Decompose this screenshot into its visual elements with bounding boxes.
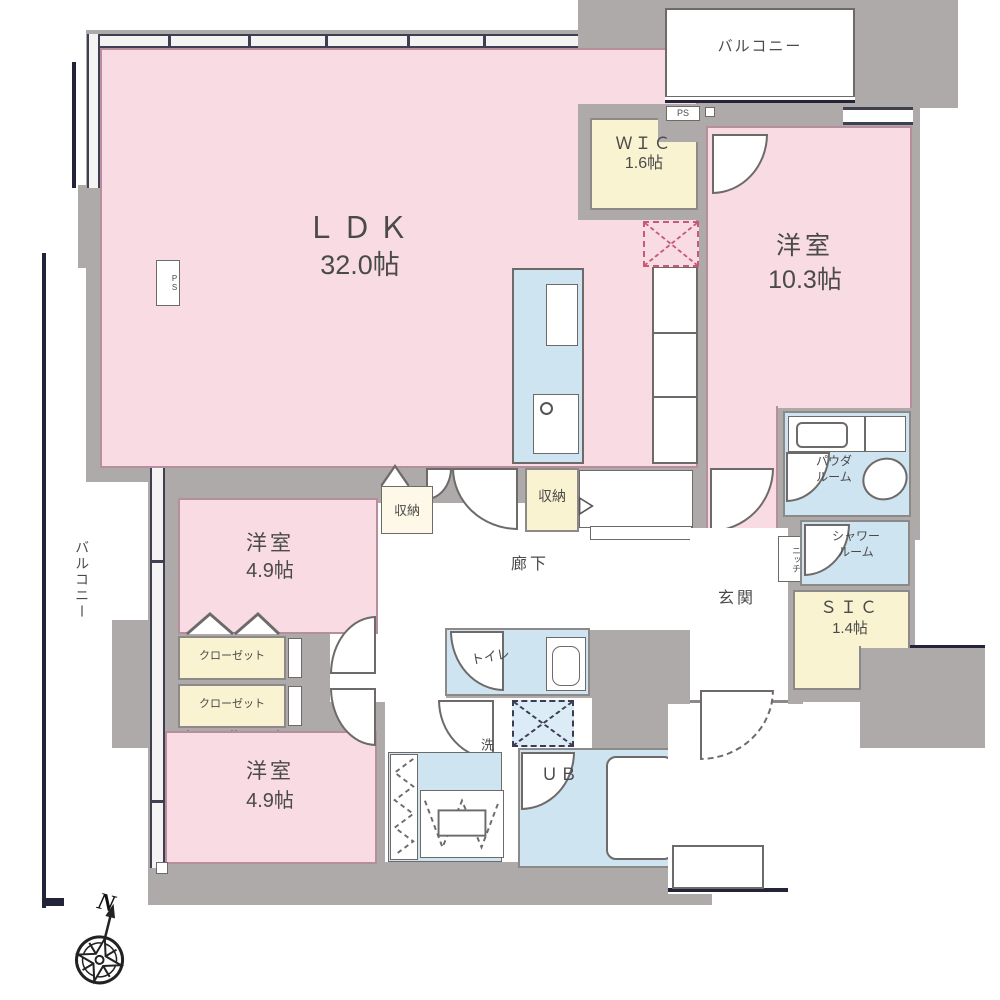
refrigerator-space-icon — [643, 221, 699, 267]
bedroom2-name-label: 洋室 — [215, 532, 325, 556]
folding-door-icon — [185, 612, 281, 636]
sic-name-label: ＳＩＣ — [800, 598, 900, 618]
window-mullion — [407, 34, 410, 48]
kitchen-sink — [533, 394, 579, 454]
balcony-top-sill — [665, 97, 855, 103]
bathtub-icon — [606, 756, 674, 860]
storage-hall-left: 収納 — [381, 486, 433, 534]
wall-left-pillar — [112, 620, 182, 748]
hall-closet — [579, 470, 693, 528]
powder-label2: ルーム — [790, 471, 878, 485]
shower-label1: シャワー — [806, 530, 906, 544]
bedroom3-size-label: 4.9帖 — [215, 790, 325, 813]
entrance-floor — [690, 528, 788, 704]
storage-hall-right-label: 収納 — [525, 488, 579, 504]
room-sic-lower — [793, 646, 861, 690]
niche-label: ニッチ — [778, 536, 802, 582]
window-mullion — [168, 34, 171, 48]
window-mullion — [150, 800, 165, 803]
slide-door-arrow-icon — [578, 496, 594, 516]
cooktop — [546, 284, 578, 346]
balcony-edge-left — [42, 253, 46, 908]
closet-door-slot — [288, 686, 302, 726]
window-mullion — [150, 560, 165, 563]
balcony-end-detail — [156, 862, 168, 874]
entrance-label: 玄関 — [702, 590, 772, 608]
bedroom1-size-label: 10.3帖 — [740, 266, 870, 295]
bedroom1-name-label: 洋室 — [745, 232, 865, 261]
balcony-left-label: バルコニー — [74, 515, 90, 645]
balcony-top-label: バルコニー — [665, 38, 855, 55]
wic-size-label: 1.6帖 — [590, 155, 698, 173]
bedroom1-window — [843, 107, 913, 125]
washing-machine-space-icon — [512, 700, 574, 747]
powder-sink-icon — [796, 422, 848, 448]
closet2-label: クローゼット — [180, 698, 284, 711]
kitchen-cabinet-column — [652, 266, 698, 464]
faucet-icon — [540, 402, 553, 415]
window-mullion — [325, 34, 328, 48]
porch-right — [860, 645, 985, 748]
floor-plan: ＬＤＫ 32.0帖 ＷＩＣ 1.6帖 PS バルコニー 洋室 10.3帖 廊下 … — [0, 0, 1000, 1000]
shower-label2: ルーム — [806, 546, 906, 560]
powder-label1: パウダ — [790, 455, 878, 469]
wic-name-label: ＷＩＣ — [590, 134, 698, 154]
folding-door-icon — [380, 464, 410, 488]
window-mullion — [248, 34, 251, 48]
window-band-left-upper — [87, 34, 100, 188]
pipe-space-left: PS — [156, 260, 180, 306]
bedroom2-size-label: 4.9帖 — [215, 560, 325, 583]
window-mullion — [483, 34, 486, 48]
powder-counter-divider — [864, 416, 866, 452]
ldk-name-label: ＬＤＫ — [280, 212, 440, 247]
corridor-label: 廊下 — [495, 556, 565, 574]
closet-door-slot — [288, 638, 302, 678]
sliding-door-track — [590, 526, 692, 540]
window-band-top — [88, 34, 578, 48]
bedroom3-name-label: 洋室 — [215, 760, 325, 784]
ldk-size-label: 32.0帖 — [280, 250, 440, 281]
unit-bath-label: ＵＢ — [530, 765, 590, 785]
balcony-edge-top-left — [72, 62, 76, 188]
closet1-label: クローゼット — [180, 650, 284, 663]
toilet-bowl-icon — [552, 646, 580, 686]
pipe-space-top: PS — [666, 106, 700, 121]
sic-size-label: 1.4帖 — [800, 620, 900, 637]
entrance-step-box — [672, 845, 764, 889]
meter-box — [705, 107, 715, 117]
vanity-mirror-icon — [390, 754, 418, 860]
wash-basin-icon — [420, 790, 504, 858]
